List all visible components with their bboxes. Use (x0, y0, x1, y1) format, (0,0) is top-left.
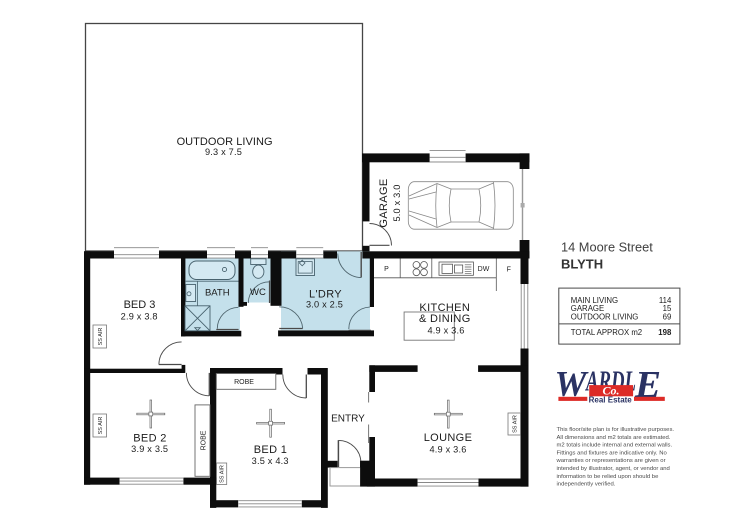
svg-text:69: 69 (663, 312, 672, 321)
svg-text:GARAGE: GARAGE (378, 178, 390, 227)
svg-text:DW: DW (478, 266, 490, 273)
svg-text:OUTDOOR LIVING: OUTDOOR LIVING (177, 136, 273, 148)
svg-text:ENTRY: ENTRY (331, 413, 365, 424)
svg-text:BED 2: BED 2 (133, 433, 167, 445)
svg-text:ROBE: ROBE (201, 430, 208, 450)
svg-text:BED 1: BED 1 (254, 444, 288, 456)
svg-text:14 Moore Street: 14 Moore Street (561, 240, 653, 255)
svg-text:9.3 x 7.5: 9.3 x 7.5 (205, 147, 242, 157)
svg-text:SS AIR: SS AIR (220, 465, 226, 483)
svg-text:SS AIR: SS AIR (98, 417, 104, 435)
svg-text:WC: WC (250, 287, 266, 298)
svg-text:Fittings and fixtures are indi: Fittings and fixtures are indicative onl… (557, 450, 668, 456)
svg-text:P: P (384, 266, 389, 273)
svg-text:LOUNGE: LOUNGE (424, 432, 473, 444)
svg-text:intended by illustrator, agent: intended by illustrator, agent, or vendo… (557, 466, 670, 472)
svg-text:4.9 x 3.6: 4.9 x 3.6 (429, 445, 466, 455)
svg-text:& DINING: & DINING (419, 313, 471, 325)
svg-text:BLYTH: BLYTH (561, 257, 603, 272)
svg-text:3.0 x 2.5: 3.0 x 2.5 (306, 299, 343, 309)
svg-text:independently verified.: independently verified. (557, 482, 616, 488)
svg-text:198: 198 (658, 328, 672, 337)
svg-text:warranties or representations: warranties or representations are given … (556, 458, 666, 464)
svg-text:All dimensions and m2 totals a: All dimensions and m2 totals are estimat… (557, 435, 671, 441)
svg-text:3.9 x 3.5: 3.9 x 3.5 (131, 444, 168, 454)
svg-text:SS AIR: SS AIR (513, 415, 519, 433)
svg-text:ROBE: ROBE (234, 379, 254, 386)
svg-text:m2 totals include internal and: m2 totals include internal and external … (557, 443, 673, 449)
svg-text:4.9 x 3.6: 4.9 x 3.6 (427, 325, 464, 335)
svg-text:5.0 x 3.0: 5.0 x 3.0 (392, 184, 402, 221)
svg-text:Real Estate: Real Estate (589, 395, 633, 404)
svg-text:OUTDOOR LIVING: OUTDOOR LIVING (571, 312, 639, 321)
svg-text:F: F (507, 266, 511, 273)
svg-text:2.9 x 3.8: 2.9 x 3.8 (121, 311, 158, 321)
svg-text:information to be relied upon: information to be relied upon should be (557, 474, 660, 480)
svg-text:This floor/site plan is for il: This floor/site plan is for illustrative… (557, 427, 675, 433)
svg-text:BED 3: BED 3 (124, 299, 156, 311)
svg-text:SS AIR: SS AIR (98, 328, 104, 346)
svg-text:TOTAL APPROX m2: TOTAL APPROX m2 (571, 328, 642, 337)
svg-text:3.5 x 4.3: 3.5 x 4.3 (252, 456, 289, 466)
svg-text:BATH: BATH (205, 288, 230, 299)
